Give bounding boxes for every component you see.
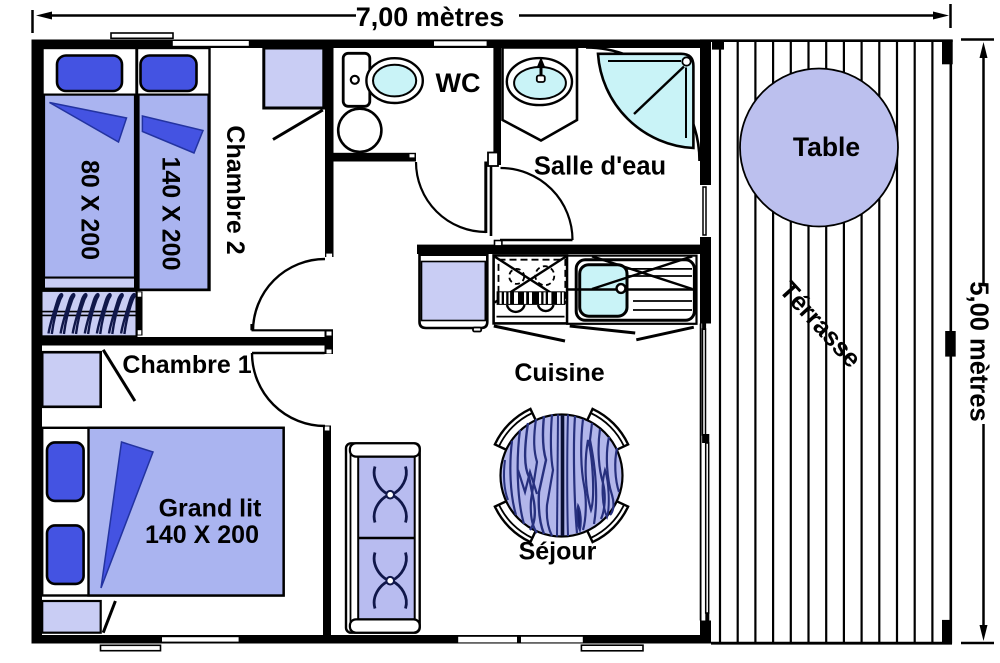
svg-text:5,00 mètres: 5,00 mètres (964, 281, 992, 421)
svg-text:Table: Table (793, 132, 860, 162)
svg-text:Chambre 1: Chambre 1 (122, 351, 251, 379)
svg-text:140 X 200: 140 X 200 (156, 157, 184, 271)
svg-text:7,00 mètres: 7,00 mètres (356, 2, 505, 32)
svg-text:Cuisine: Cuisine (514, 359, 604, 387)
svg-text:Chambre 2: Chambre 2 (221, 125, 249, 254)
svg-text:Salle d'eau: Salle d'eau (534, 153, 666, 181)
svg-text:140 X 200: 140 X 200 (145, 521, 259, 549)
svg-text:WC: WC (436, 68, 481, 98)
svg-text:Séjour: Séjour (519, 538, 597, 566)
svg-text:80 X 200: 80 X 200 (75, 160, 103, 260)
svg-text:Grand lit: Grand lit (159, 495, 262, 523)
